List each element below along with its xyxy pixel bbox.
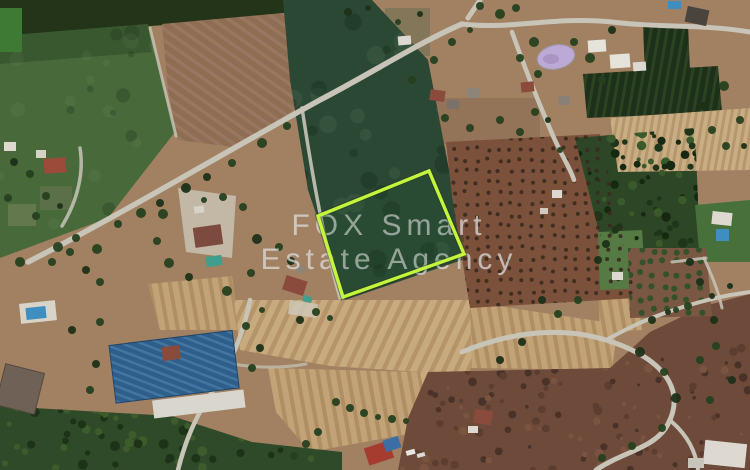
watermark-line2: Estate Agency bbox=[14, 243, 750, 277]
white-building-bottom-right bbox=[703, 440, 747, 468]
pool-top-right bbox=[668, 1, 681, 9]
watermark-line1: FOX Smart bbox=[14, 209, 750, 243]
white-canopy-2 bbox=[610, 53, 631, 68]
watermark: FOX Smart Estate Agency bbox=[14, 209, 750, 277]
bright-green-patch bbox=[0, 8, 22, 52]
satellite-photo: FOX Smart Estate Agency bbox=[0, 0, 750, 470]
striped-field-top-right bbox=[610, 108, 750, 172]
white-canopy-1 bbox=[588, 39, 607, 52]
netted-orchard-2 bbox=[583, 66, 722, 118]
pool-bottom-left bbox=[25, 306, 46, 320]
netted-orchard-1 bbox=[643, 24, 690, 74]
red-roof-house-left bbox=[44, 157, 67, 173]
